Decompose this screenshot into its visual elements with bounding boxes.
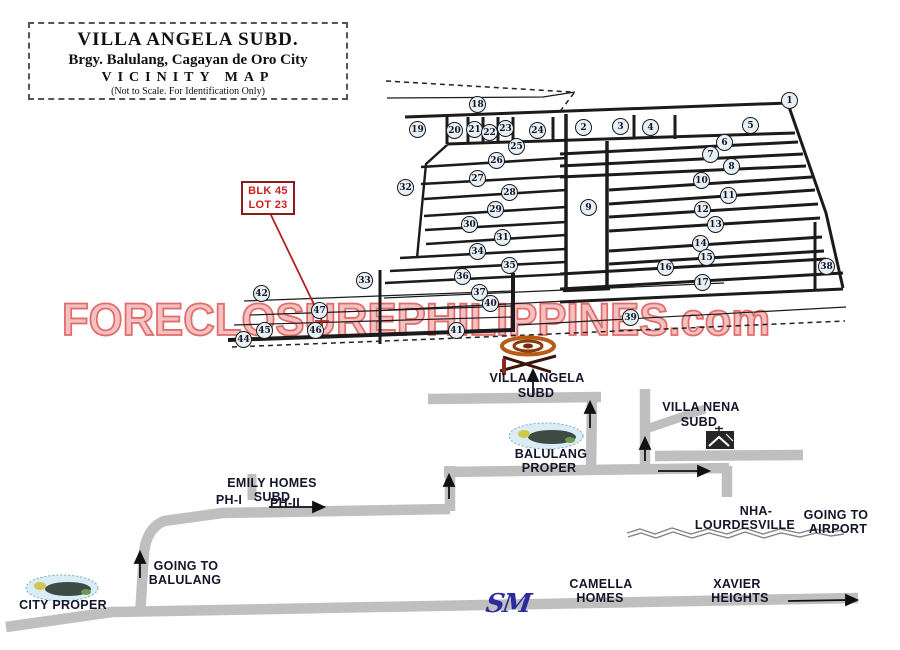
label-balulang-proper-2: PROPER [522, 461, 577, 475]
label-going-to-balulang-2: BALULANG [149, 573, 222, 587]
label-villa-nena-subd-2: SUBD [681, 415, 718, 429]
sm-logo: SM [484, 589, 532, 619]
label-camella-homes-2: HOMES [576, 591, 623, 605]
label-balulang-proper-1: BALULANG [515, 447, 588, 461]
label-going-to-balulang-1: GOING TO [154, 559, 219, 573]
label-ph-1: PH-I [216, 493, 242, 507]
label-villa-angela-subd-2: SUBD [518, 386, 555, 400]
road-labels-layer: VILLA ANGELASUBDBALULANGPROPERVILLA NENA… [0, 0, 900, 650]
label-villa-nena-subd-1: VILLA NENA [662, 400, 740, 414]
label-nha-lourdesville-2: LOURDESVILLE [695, 518, 795, 532]
label-xavier-heights-2: HEIGHTS [711, 591, 769, 605]
label-camella-homes-1: CAMELLA [569, 577, 632, 591]
label-emily-homes-subd-1: EMILY HOMES [227, 476, 316, 490]
label-city-proper: CITY PROPER [19, 598, 107, 612]
label-going-to-airport-2: AIRPORT [809, 522, 867, 536]
vicinity-map: FORECLOSUREPHILIPPINES.com [0, 0, 900, 650]
label-ph-2: PH-II [270, 496, 300, 510]
label-nha-lourdesville-1: NHA- [740, 504, 772, 518]
label-xavier-heights-1: XAVIER [713, 577, 760, 591]
label-villa-angela-subd-1: VILLA ANGELA [489, 371, 584, 385]
label-going-to-airport-1: GOING TO [804, 508, 869, 522]
